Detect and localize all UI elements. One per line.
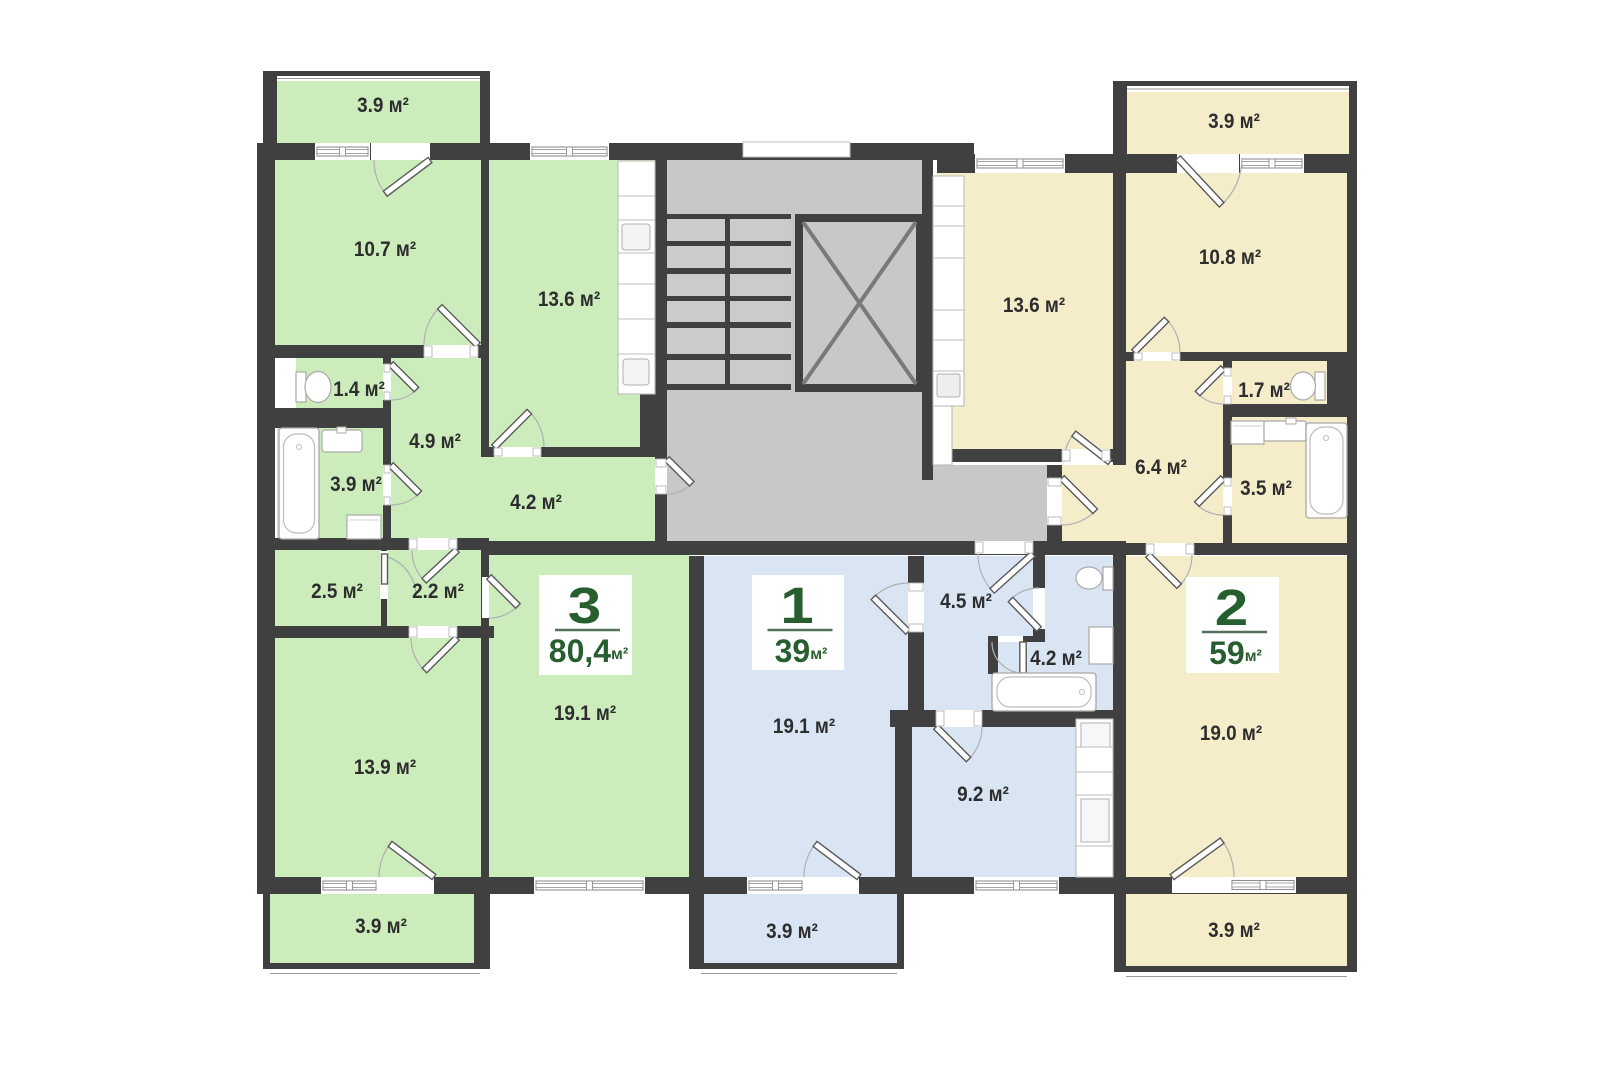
svg-text:3.9 м²: 3.9 м² [330,473,382,496]
svg-text:1: 1 [780,577,813,634]
svg-text:9.2 м²: 9.2 м² [957,783,1009,806]
svg-text:6.4 м²: 6.4 м² [1135,456,1187,479]
svg-text:10.8 м²: 10.8 м² [1199,246,1262,269]
svg-text:3.9 м²: 3.9 м² [355,915,407,938]
svg-text:19.1 м²: 19.1 м² [554,702,617,725]
svg-text:4.2 м²: 4.2 м² [510,491,562,514]
svg-text:2: 2 [1215,579,1248,636]
svg-text:3.5 м²: 3.5 м² [1240,477,1292,500]
svg-text:4.2 м²: 4.2 м² [1030,647,1082,670]
svg-text:10.7 м²: 10.7 м² [354,238,417,261]
svg-text:4.9 м²: 4.9 м² [409,430,461,453]
svg-text:13.6 м²: 13.6 м² [1003,294,1066,317]
svg-text:3.9 м²: 3.9 м² [1208,110,1260,133]
svg-text:13.9 м²: 13.9 м² [354,756,417,779]
svg-text:1.4 м²: 1.4 м² [333,378,385,401]
svg-text:13.6 м²: 13.6 м² [538,288,601,311]
svg-text:2.5 м²: 2.5 м² [311,580,363,603]
svg-text:1.7 м²: 1.7 м² [1238,379,1290,402]
svg-text:19.0 м²: 19.0 м² [1200,722,1263,745]
svg-text:19.1 м²: 19.1 м² [773,715,836,738]
svg-text:2.2 м²: 2.2 м² [412,580,464,603]
svg-text:3.9 м²: 3.9 м² [766,920,818,943]
svg-text:3.9 м²: 3.9 м² [1208,919,1260,942]
svg-text:4.5 м²: 4.5 м² [940,590,992,613]
svg-text:3: 3 [568,577,601,634]
svg-text:3.9 м²: 3.9 м² [357,94,409,117]
